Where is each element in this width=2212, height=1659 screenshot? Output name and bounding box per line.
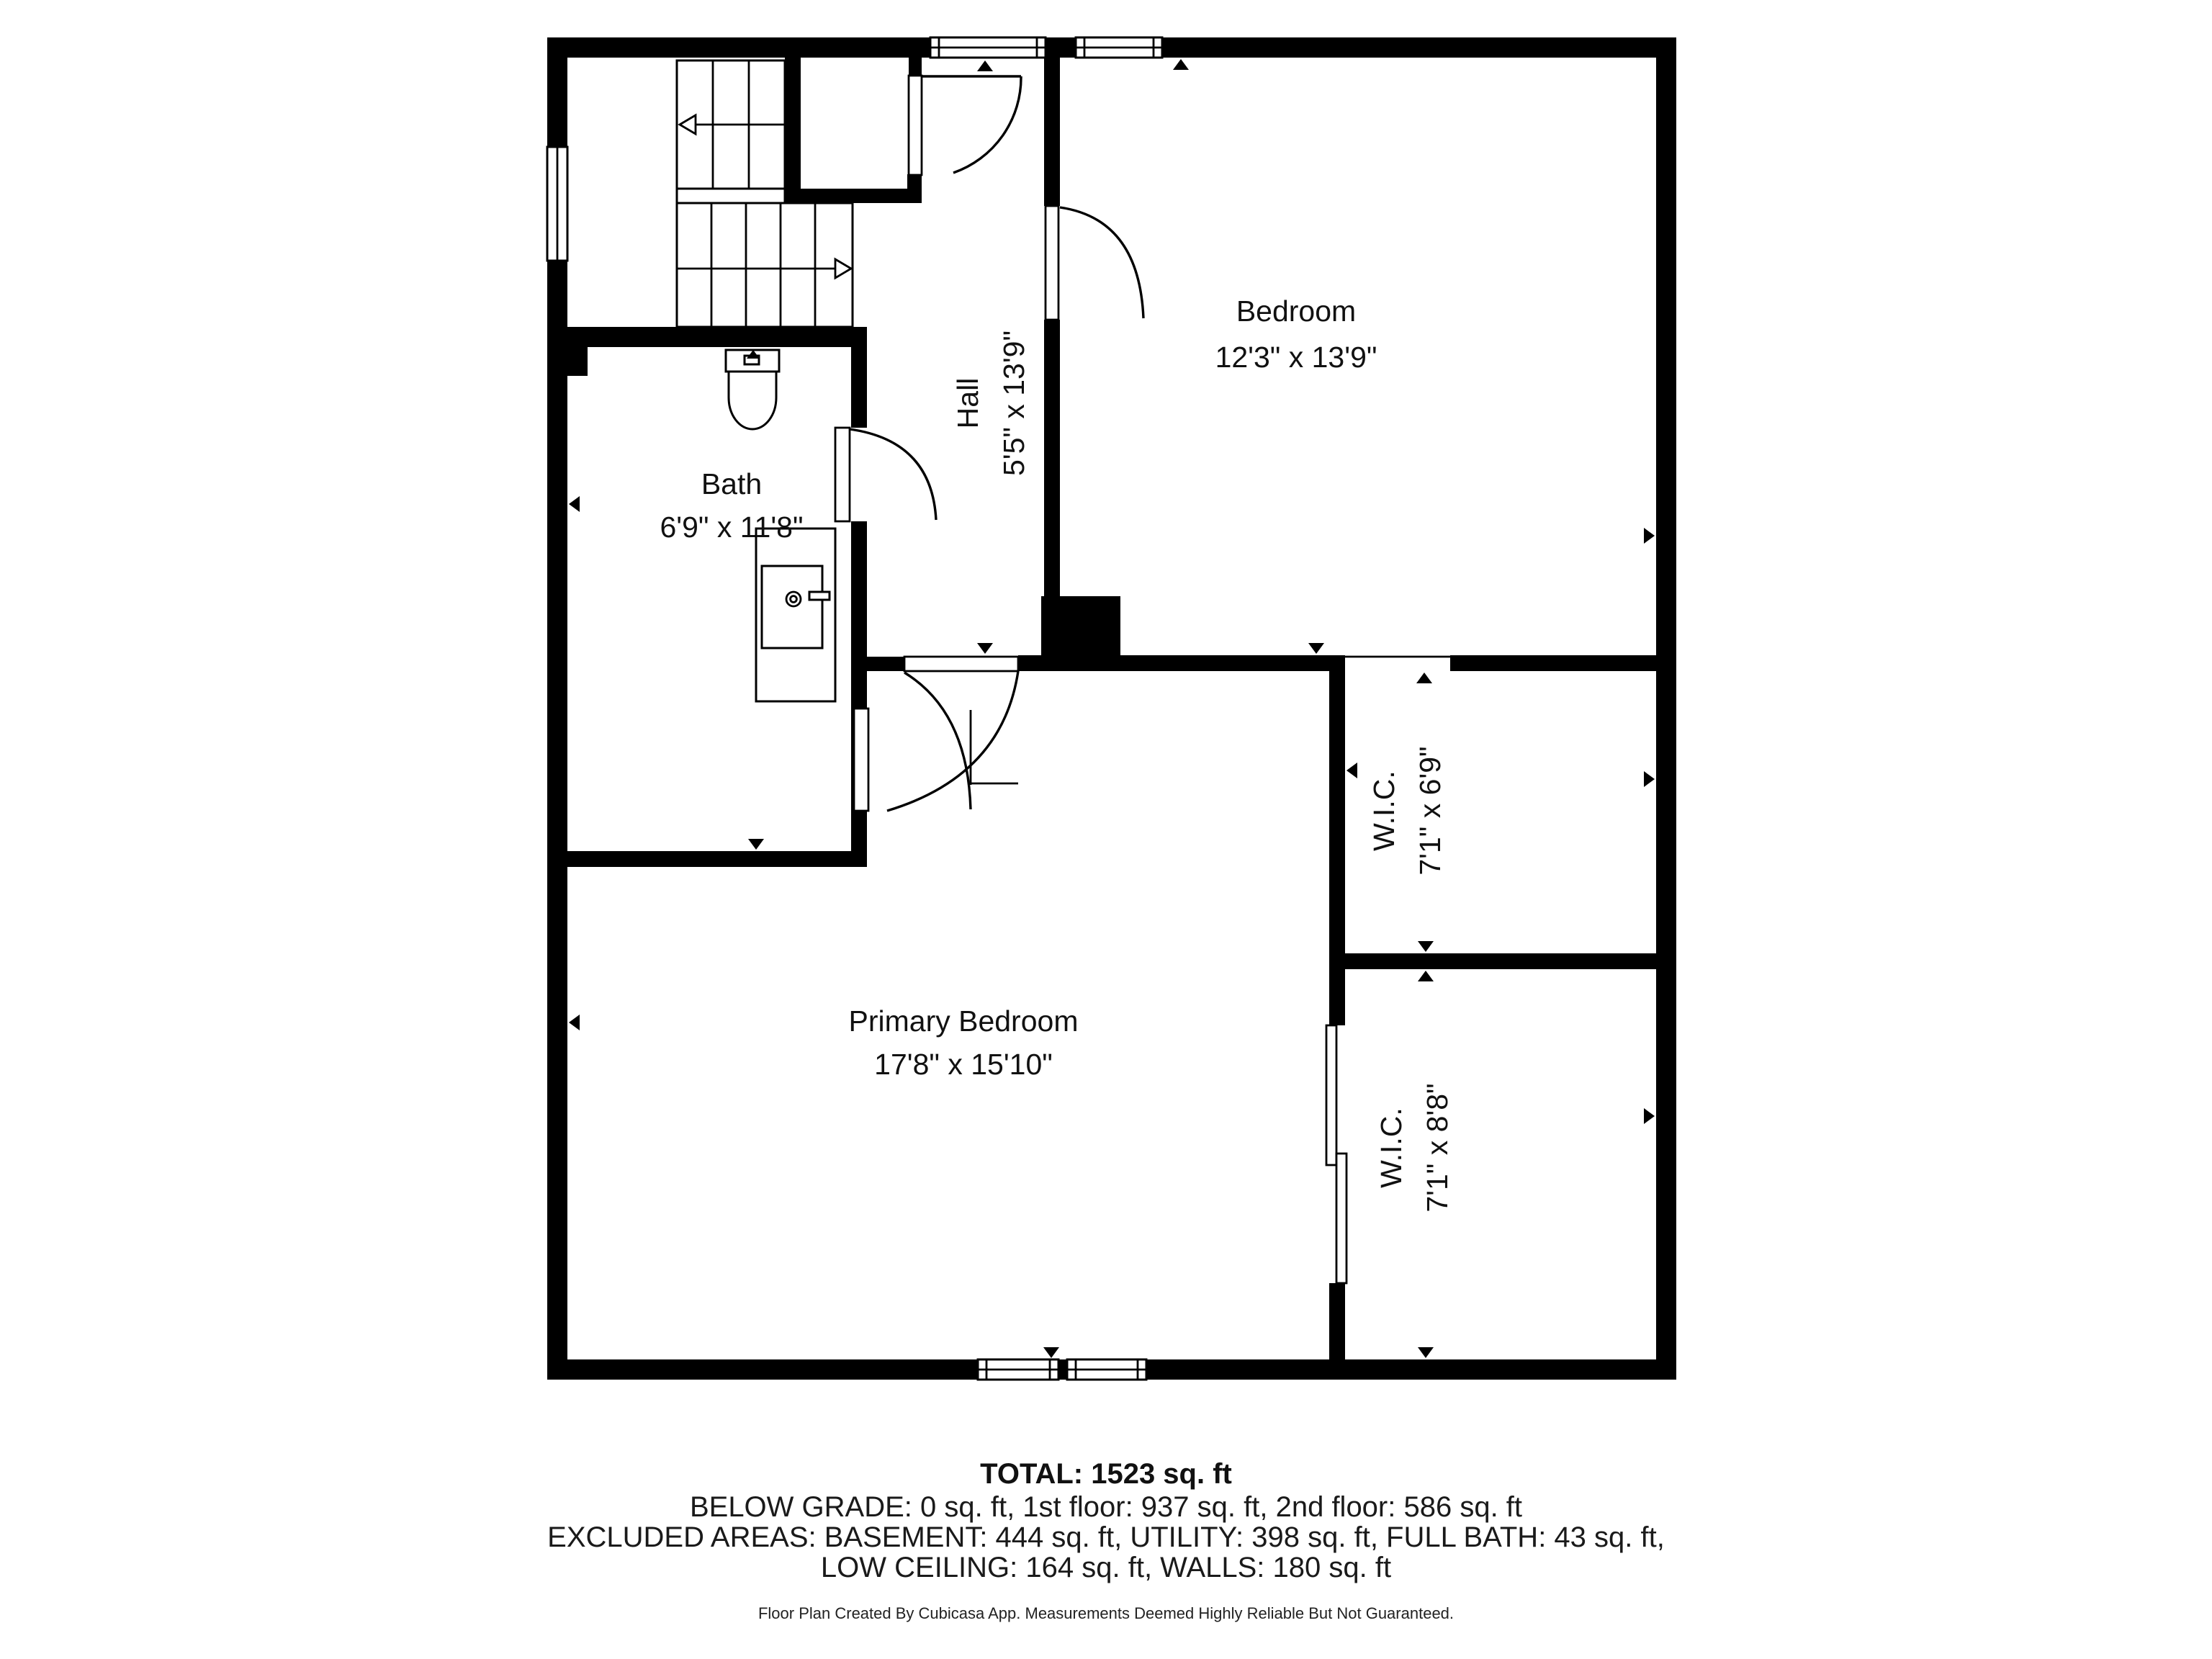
wall-wic2-left-upper [1329, 969, 1345, 1025]
door-primary-bedroom [887, 657, 1018, 811]
wall-measure-arrow-icon [1418, 1347, 1434, 1358]
wall-measure-arrow-icon [977, 60, 993, 71]
floor-plan-canvas: Bedroom 12'3" x 13'9" Hall5'5" x 13'9" B… [0, 0, 2212, 1659]
wall-measure-arrow-icon [1173, 59, 1189, 70]
door-closet [909, 76, 1021, 175]
wall-hall-bottom-stub [867, 657, 904, 671]
wall-wic-divider [1329, 953, 1676, 969]
wall-measure-arrow-icon [1644, 1108, 1655, 1124]
wall-closet-bottom [785, 189, 922, 203]
area-summary: TOTAL: 1523 sq. ft BELOW GRADE: 0 sq. ft… [547, 1458, 1665, 1622]
wall-bath-right-upper [851, 347, 867, 428]
room-label-hall-dims: 5'5" x 13'9" [997, 331, 1030, 476]
door-bath [835, 428, 936, 521]
room-dims-primary-bedroom: 17'8" x 15'10" [874, 1048, 1053, 1081]
room-label-wic-upper-dims: 7'1" x 6'9" [1413, 746, 1447, 875]
window-top-bedroom [1076, 37, 1162, 58]
toilet-fixture-icon [726, 350, 779, 429]
stairs-landing [677, 189, 785, 203]
wall-closet-right-upper [909, 58, 922, 76]
room-label-wic-lower-name: W.I.C. [1375, 1107, 1408, 1188]
wall-bath-bottom [567, 851, 867, 867]
window-top-hall [930, 37, 1046, 58]
stairs-lower-flight [677, 203, 853, 327]
wall-measure-arrow-icon [1644, 528, 1655, 544]
wall-bath-right-lower [851, 521, 867, 867]
room-label-wic-lower: W.I.C.7'1" x 8'8" [1375, 1083, 1454, 1212]
floor-plan-page: Bedroom 12'3" x 13'9" Hall5'5" x 13'9" B… [0, 0, 2212, 1659]
wall-measure-arrow-icon [748, 839, 764, 850]
wall-measure-arrow-icon [1043, 1347, 1059, 1358]
wall-stairs-bath [567, 327, 867, 347]
door-bedroom [1046, 206, 1143, 320]
wall-wic2-left-lower [1329, 1283, 1345, 1359]
wall-measure-arrow-icon [977, 643, 993, 654]
room-label-hall: Hall5'5" x 13'9" [951, 331, 1030, 476]
summary-excluded-2: LOW CEILING: 164 sq. ft, WALLS: 180 sq. … [821, 1552, 1391, 1583]
footer-disclaimer: Floor Plan Created By Cubicasa App. Meas… [758, 1604, 1454, 1622]
wall-wic1-top [1450, 655, 1656, 671]
wall-bedroom-bottom [1018, 655, 1345, 671]
window-bottom-1 [978, 1359, 1058, 1380]
door-sliding-wic [1326, 1025, 1346, 1283]
room-label-wic-upper-name: W.I.C. [1367, 770, 1401, 851]
wall-outer-right [1656, 37, 1676, 1380]
room-dims-bath: 6'9" x 11'8" [660, 511, 803, 544]
wall-measure-arrow-icon [1346, 763, 1357, 778]
wall-measure-arrow-icon [1416, 673, 1432, 683]
room-label-wic-upper: W.I.C.7'1" x 6'9" [1367, 746, 1447, 875]
room-label-wic-lower-dims: 7'1" x 8'8" [1421, 1083, 1454, 1212]
wall-nub [567, 347, 588, 376]
summary-excluded-1: EXCLUDED AREAS: BASEMENT: 444 sq. ft, UT… [547, 1521, 1665, 1553]
wall-closet-right-lower [907, 174, 922, 203]
wall-measure-arrow-icon [569, 496, 580, 512]
window-left [547, 147, 567, 261]
wall-measure-arrow-icon [569, 1015, 580, 1030]
summary-floors: BELOW GRADE: 0 sq. ft, 1st floor: 937 sq… [690, 1491, 1522, 1523]
wall-measure-arrow-icon [1308, 643, 1324, 654]
sink-vanity-fixture-icon [756, 529, 835, 701]
room-label-hall-name: Hall [951, 378, 984, 429]
wall-hall-bedroom-upper [1044, 58, 1060, 206]
wall-wic1-left [1329, 671, 1345, 953]
doors [835, 76, 1450, 1283]
window-bottom-2 [1067, 1359, 1146, 1380]
wall-measure-arrow-icon [1418, 971, 1434, 981]
room-label-bedroom: Bedroom [1236, 295, 1356, 328]
wall-hall-bedroom-lower [1044, 320, 1060, 596]
wall-measure-arrow-icon [1418, 941, 1434, 952]
door-hall-lower [854, 673, 971, 811]
summary-total: TOTAL: 1523 sq. ft [980, 1458, 1232, 1490]
room-label-bath: Bath [701, 467, 762, 500]
room-label-primary-bedroom: Primary Bedroom [849, 1004, 1079, 1038]
wall-measure-arrow-icon [1644, 771, 1655, 787]
room-dims-bedroom: 12'3" x 13'9" [1215, 341, 1377, 374]
wall-closet-left [785, 58, 801, 203]
